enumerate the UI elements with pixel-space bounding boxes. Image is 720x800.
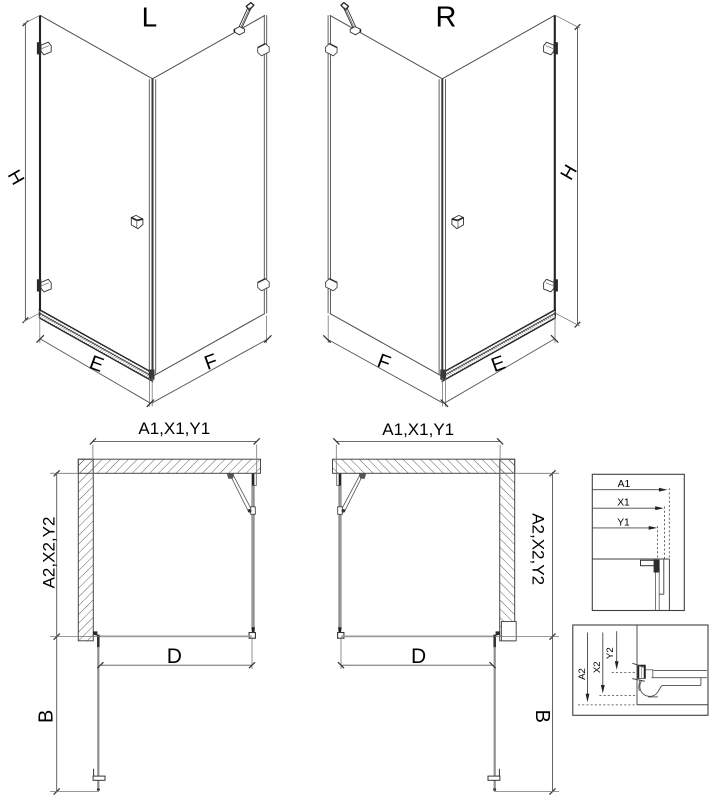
svg-text:A2,X2,Y2: A2,X2,Y2	[528, 513, 547, 585]
svg-text:B: B	[36, 710, 58, 723]
svg-text:R: R	[436, 2, 457, 34]
svg-text:A1: A1	[618, 479, 631, 490]
svg-text:Y1: Y1	[617, 517, 630, 528]
svg-text:A1,X1,Y1: A1,X1,Y1	[382, 420, 454, 439]
svg-text:X2: X2	[592, 661, 603, 673]
svg-text:D: D	[167, 645, 182, 668]
svg-text:X1: X1	[617, 498, 630, 509]
svg-text:A1,X1,Y1: A1,X1,Y1	[138, 419, 210, 438]
svg-text:Y2: Y2	[605, 647, 616, 659]
svg-text:B: B	[531, 710, 553, 723]
svg-text:D: D	[411, 645, 426, 668]
svg-text:L: L	[142, 2, 158, 33]
svg-text:A2,X2,Y2: A2,X2,Y2	[40, 517, 59, 589]
svg-text:A2: A2	[577, 668, 588, 680]
